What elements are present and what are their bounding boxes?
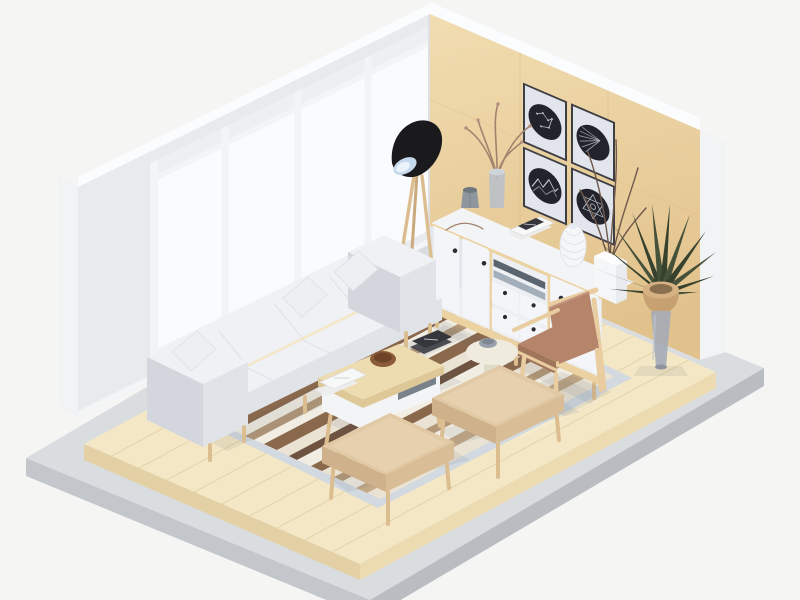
faceted-vase [461, 187, 479, 208]
window-mullion-1 [222, 125, 229, 332]
door-left-2 [463, 238, 489, 327]
window-mullion-3 [365, 55, 372, 262]
left-wall-end-face [58, 175, 78, 417]
right-wall-end-face [700, 130, 726, 360]
isometric-living-room-scene: living room diorama [0, 0, 800, 600]
window-frame-left [150, 160, 158, 368]
wooden-bowl-inner [374, 353, 392, 363]
window-mullion-2 [295, 89, 302, 296]
gray-bowl-inner [482, 339, 494, 345]
